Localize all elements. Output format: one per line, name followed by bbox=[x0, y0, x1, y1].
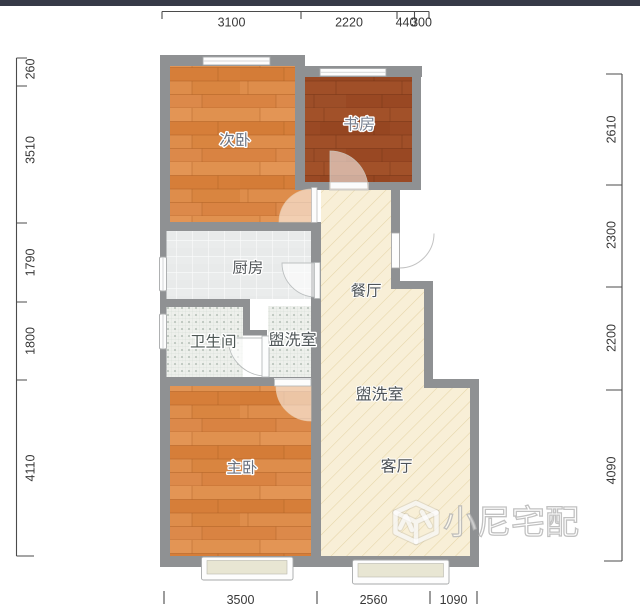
svg-text:1800: 1800 bbox=[24, 327, 38, 355]
svg-text:3510: 3510 bbox=[24, 136, 38, 164]
svg-text:4110: 4110 bbox=[24, 455, 38, 482]
svg-text:2610: 2610 bbox=[605, 116, 619, 144]
svg-text:300: 300 bbox=[411, 16, 432, 30]
svg-text:2300: 2300 bbox=[605, 221, 619, 249]
svg-text:2560: 2560 bbox=[360, 593, 388, 607]
svg-text:260: 260 bbox=[24, 59, 38, 80]
svg-text:2220: 2220 bbox=[335, 16, 363, 30]
svg-text:4090: 4090 bbox=[605, 457, 619, 485]
svg-text:1790: 1790 bbox=[24, 249, 38, 277]
svg-text:2200: 2200 bbox=[605, 324, 619, 352]
svg-text:3500: 3500 bbox=[227, 593, 255, 607]
svg-text:3100: 3100 bbox=[218, 16, 246, 30]
svg-text:1090: 1090 bbox=[440, 593, 468, 607]
